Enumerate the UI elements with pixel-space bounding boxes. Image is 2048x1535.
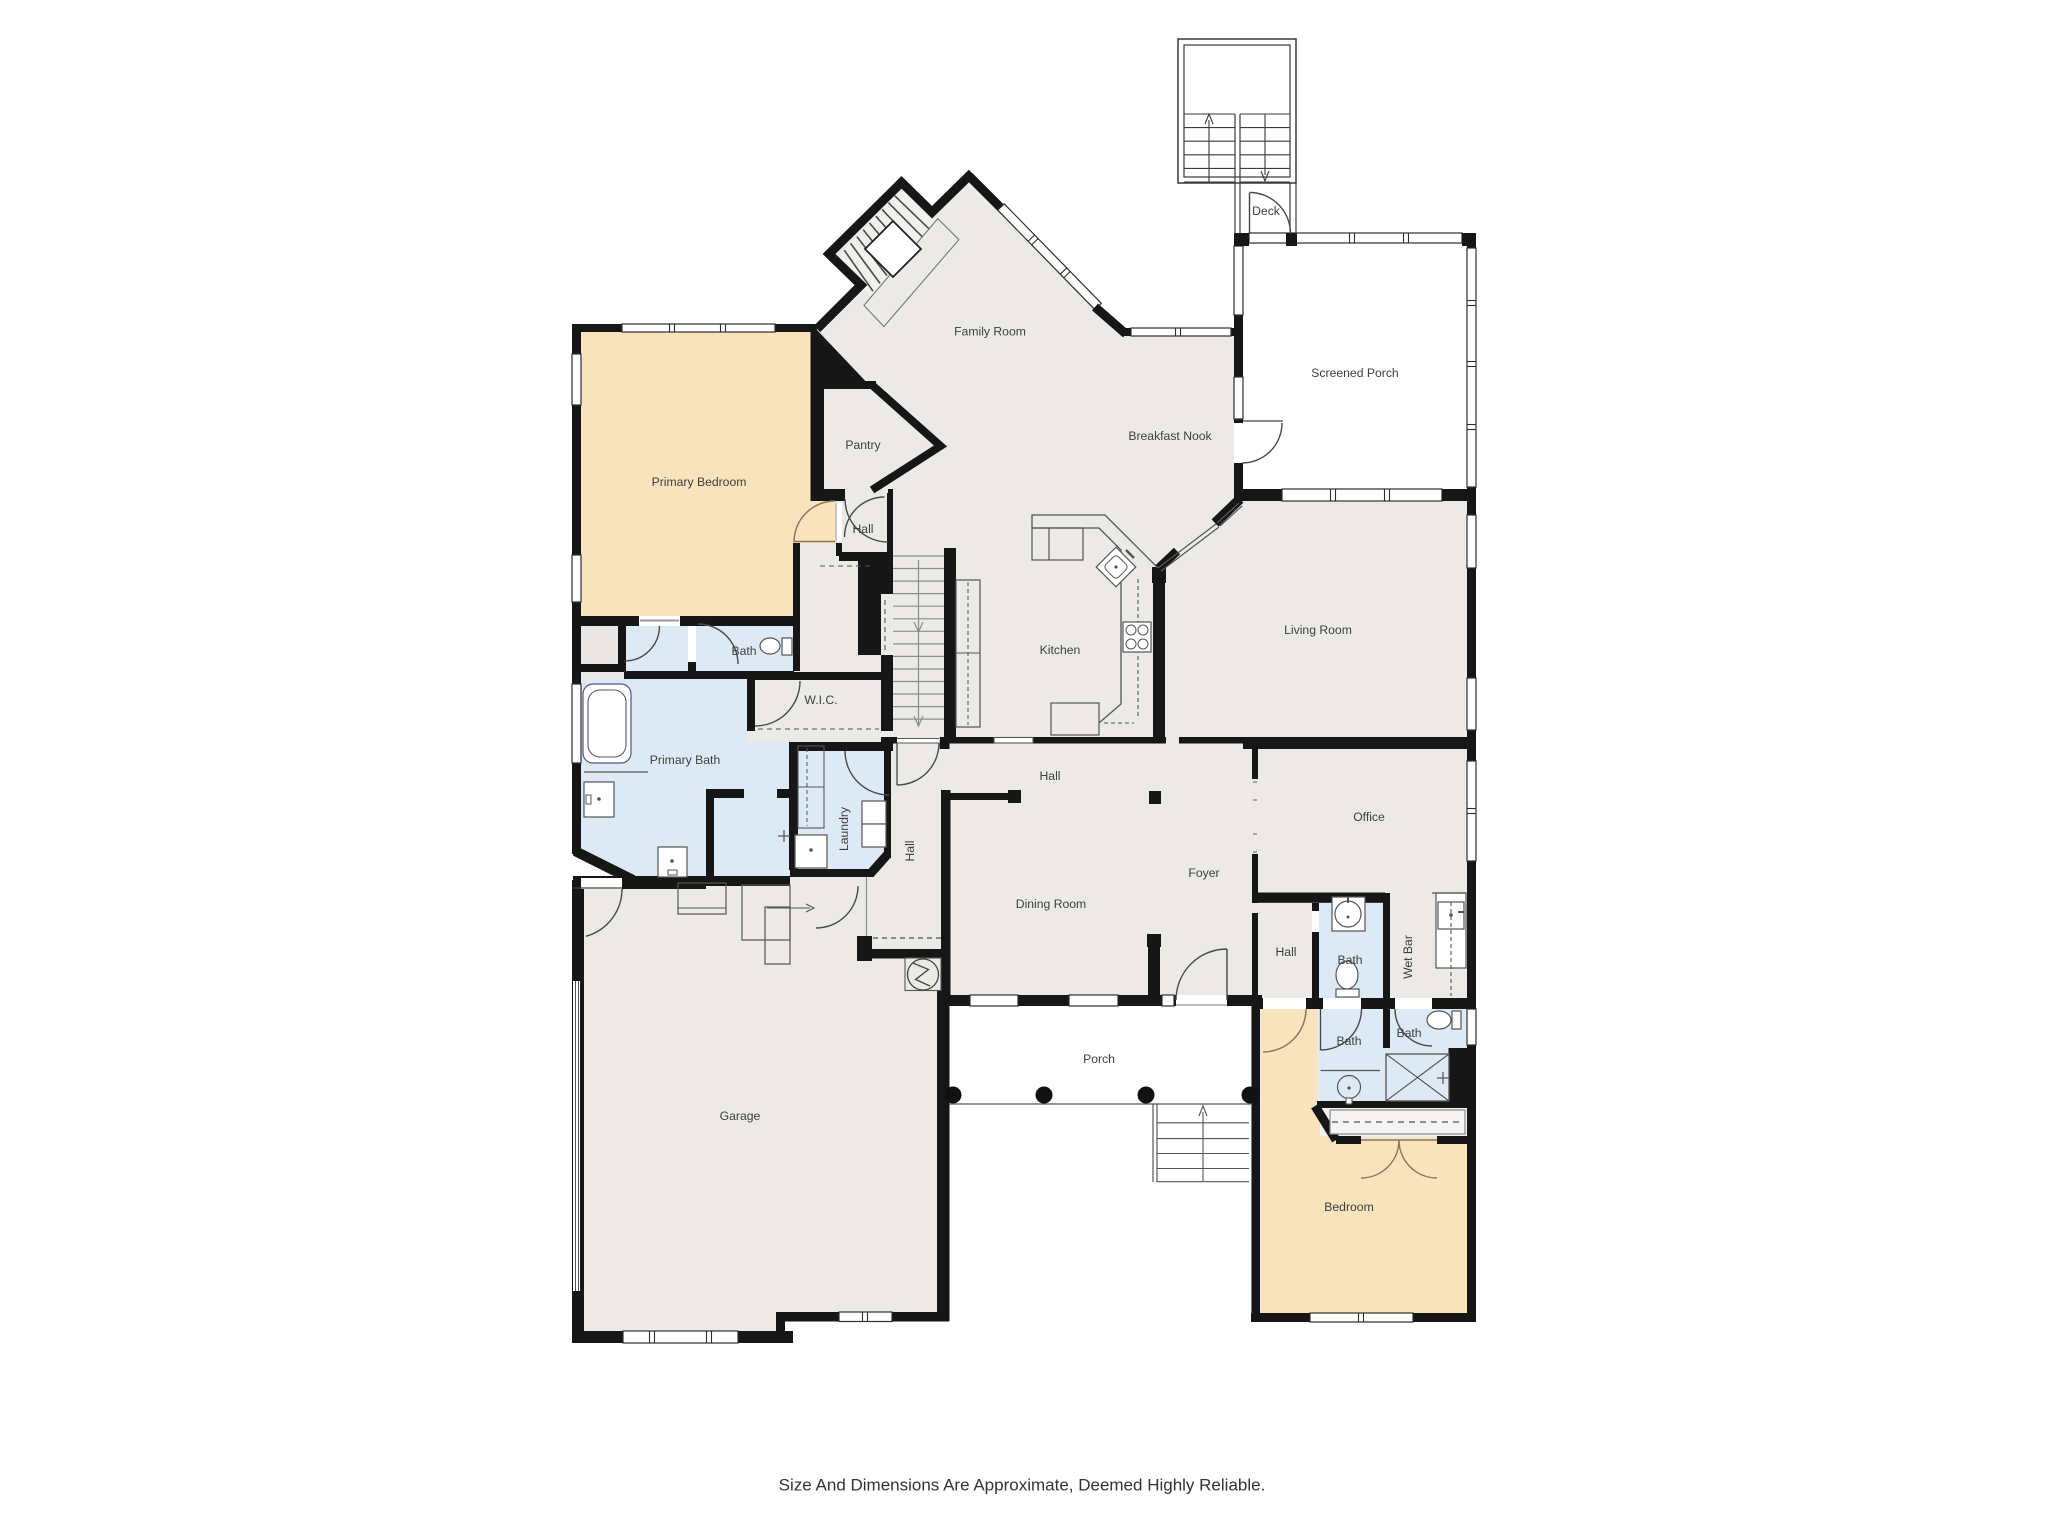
svg-text:Deck: Deck [1252, 204, 1281, 218]
svg-text:Bath: Bath [1396, 1026, 1421, 1040]
svg-text:Bedroom: Bedroom [1324, 1200, 1373, 1214]
svg-text:Primary Bedroom: Primary Bedroom [652, 475, 747, 489]
svg-text:Primary Bath: Primary Bath [650, 753, 720, 767]
svg-text:Dining Room: Dining Room [1016, 897, 1086, 911]
svg-text:Laundry: Laundry [837, 806, 851, 851]
svg-text:Hall: Hall [1276, 945, 1297, 959]
svg-text:Porch: Porch [1083, 1052, 1115, 1066]
svg-text:Living Room: Living Room [1284, 623, 1352, 637]
svg-text:Bath: Bath [1336, 1034, 1361, 1048]
svg-text:Bath: Bath [1337, 953, 1362, 967]
svg-text:Pantry: Pantry [845, 438, 881, 452]
svg-text:Breakfast Nook: Breakfast Nook [1128, 429, 1212, 443]
svg-text:Kitchen: Kitchen [1040, 643, 1081, 657]
svg-text:W.I.C.: W.I.C. [804, 693, 837, 707]
svg-text:Screened Porch: Screened Porch [1311, 366, 1398, 380]
svg-text:Family Room: Family Room [954, 325, 1026, 339]
svg-text:Office: Office [1353, 810, 1385, 824]
svg-text:Hall: Hall [903, 841, 917, 862]
svg-text:Size And Dimensions Are Approx: Size And Dimensions Are Approximate, Dee… [779, 1476, 1266, 1495]
svg-text:Bath: Bath [731, 644, 756, 658]
svg-text:Wet Bar: Wet Bar [1401, 935, 1415, 979]
svg-text:Foyer: Foyer [1188, 866, 1219, 880]
svg-text:Garage: Garage [720, 1109, 761, 1123]
svg-text:Hall: Hall [853, 522, 874, 536]
svg-text:Hall: Hall [1040, 769, 1061, 783]
